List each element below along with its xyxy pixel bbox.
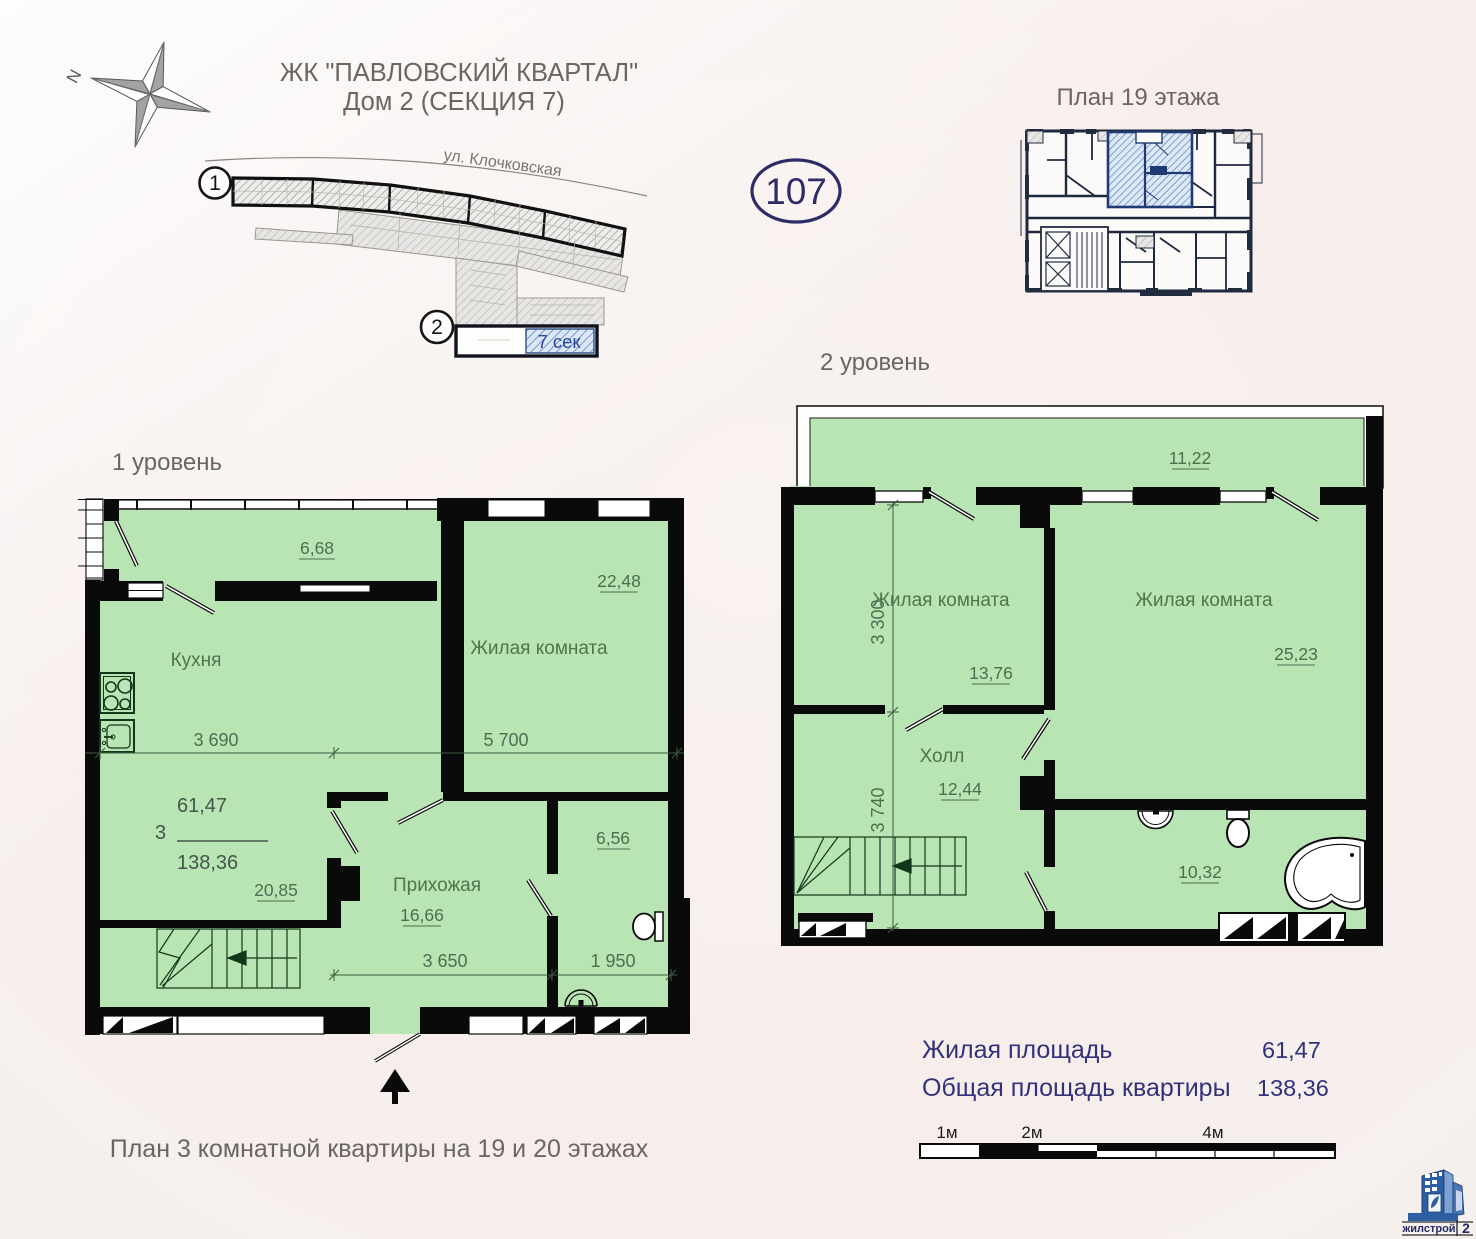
svg-text:Дом 2 (СЕКЦИЯ 7): Дом 2 (СЕКЦИЯ 7): [343, 88, 565, 116]
svg-text:5 700: 5 700: [483, 730, 528, 750]
svg-text:3: 3: [155, 822, 166, 844]
svg-text:61,47: 61,47: [1262, 1037, 1321, 1063]
svg-text:3 650: 3 650: [422, 951, 467, 971]
svg-text:3 690: 3 690: [193, 730, 238, 750]
svg-text:Прихожая: Прихожая: [393, 875, 481, 896]
svg-text:План 19 этажа: План 19 этажа: [1056, 84, 1220, 111]
svg-text:7 сек: 7 сек: [537, 331, 581, 352]
svg-text:13,76: 13,76: [969, 663, 1013, 683]
svg-text:61,47: 61,47: [177, 795, 227, 817]
svg-text:22,48: 22,48: [597, 571, 641, 591]
svg-text:2: 2: [431, 316, 443, 339]
svg-text:2м: 2м: [1021, 1123, 1042, 1142]
svg-text:Кухня: Кухня: [171, 650, 222, 671]
svg-text:1 950: 1 950: [590, 951, 635, 971]
svg-text:138,36: 138,36: [1257, 1075, 1329, 1101]
svg-text:138,36: 138,36: [177, 852, 238, 874]
svg-text:11,22: 11,22: [1169, 448, 1212, 468]
svg-text:Холл: Холл: [920, 746, 965, 767]
svg-text:1: 1: [209, 172, 221, 195]
svg-text:25,23: 25,23: [1274, 644, 1318, 664]
svg-text:жилстрой: жилстрой: [1401, 1223, 1455, 1235]
svg-text:6,56: 6,56: [596, 828, 630, 848]
svg-text:4м: 4м: [1202, 1123, 1223, 1142]
svg-text:20,85: 20,85: [254, 880, 298, 900]
svg-text:107: 107: [765, 171, 827, 212]
svg-text:2: 2: [1462, 1220, 1470, 1236]
svg-text:16,66: 16,66: [400, 905, 444, 925]
svg-text:3 740: 3 740: [868, 787, 888, 832]
svg-text:Жилая комната: Жилая комната: [872, 590, 1010, 611]
svg-text:Жилая площадь: Жилая площадь: [922, 1036, 1112, 1064]
svg-text:12,44: 12,44: [938, 779, 982, 799]
svg-text:Жилая комната: Жилая комната: [470, 638, 608, 659]
svg-text:Жилая комната: Жилая комната: [1135, 590, 1273, 611]
svg-text:Общая площадь квартиры: Общая площадь квартиры: [922, 1074, 1231, 1102]
svg-text:10,32: 10,32: [1178, 862, 1222, 882]
svg-text:2 уровень: 2 уровень: [820, 349, 930, 376]
svg-text:План 3 комнатной квартиры на 1: План 3 комнатной квартиры на 19 и 20 эта…: [110, 1135, 649, 1163]
svg-text:ЖК "ПАВЛОВСКИЙ КВАРТАЛ": ЖК "ПАВЛОВСКИЙ КВАРТАЛ": [280, 57, 638, 87]
svg-text:1 уровень: 1 уровень: [112, 449, 222, 476]
svg-text:1м: 1м: [936, 1123, 957, 1142]
svg-text:6,68: 6,68: [300, 538, 334, 558]
